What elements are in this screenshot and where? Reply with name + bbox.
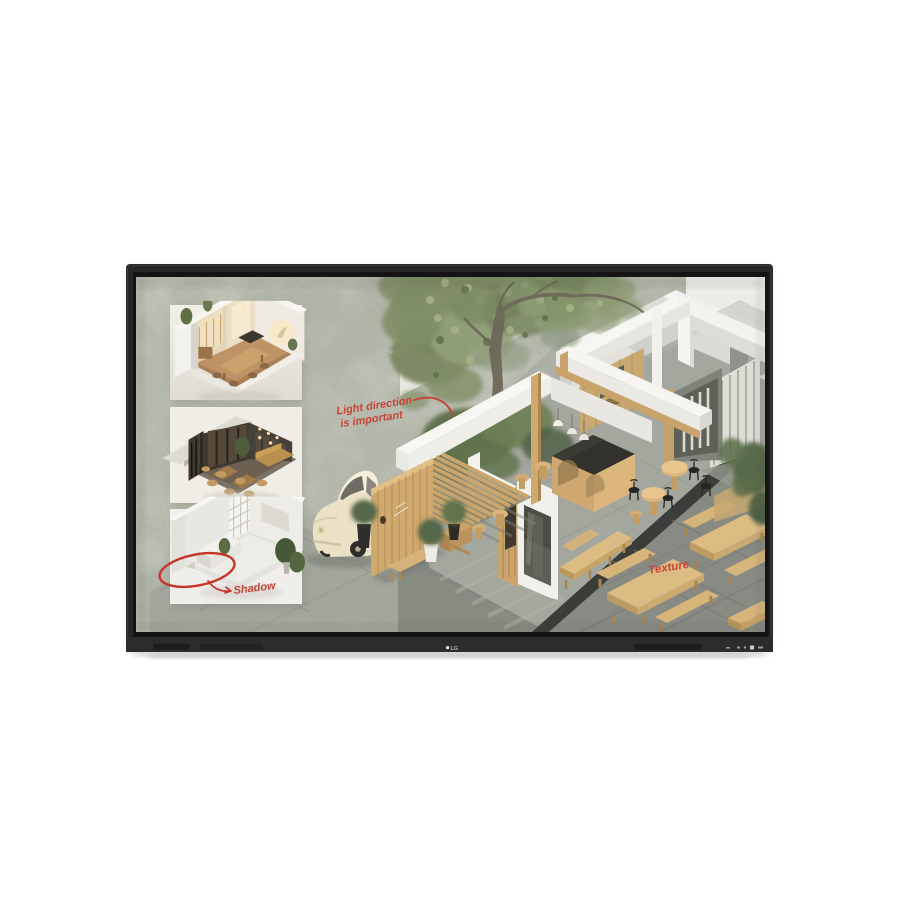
- svg-text:LG: LG: [451, 646, 459, 652]
